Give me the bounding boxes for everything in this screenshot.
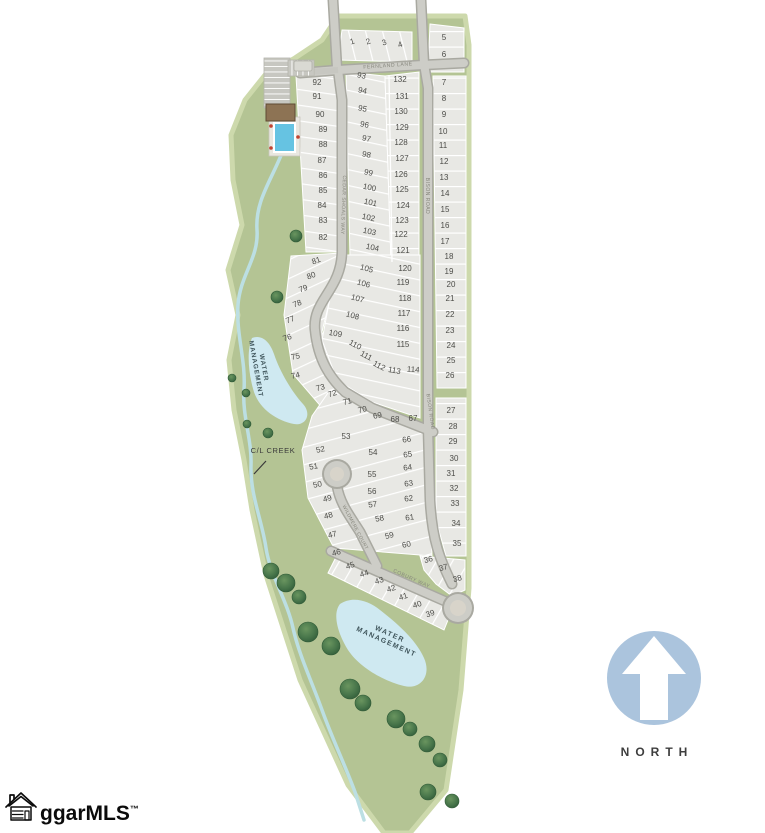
lot-number-23: 23 [446, 326, 455, 335]
lot-number-86: 86 [319, 171, 328, 180]
pool-umbrella-icon [269, 146, 273, 150]
lot-number-68: 68 [391, 415, 400, 424]
lot-number-33: 33 [451, 499, 460, 508]
north-indicator: NORTH [596, 626, 712, 759]
mls-logo: ggarMLS™ [4, 790, 139, 824]
lot-number-126: 126 [394, 170, 408, 179]
pool-umbrella-icon [269, 124, 273, 128]
lot-number-9: 9 [442, 110, 447, 119]
lot-number-20: 20 [447, 280, 456, 289]
plat-map-page: FERNLAND LANECEDAR SHOALS WAYBISON ROADB… [0, 0, 765, 833]
lot-number-129: 129 [395, 123, 409, 132]
lot-number-67: 67 [409, 414, 418, 423]
lot-number-82: 82 [319, 233, 328, 242]
tree-icon [242, 389, 250, 397]
lot-number-91: 91 [313, 92, 322, 101]
lot-number-57: 57 [368, 499, 379, 509]
lot-number-121: 121 [396, 246, 410, 255]
lot-number-115: 115 [397, 340, 410, 349]
lot-number-62: 62 [404, 493, 415, 503]
lot-number-92: 92 [313, 78, 322, 87]
lot-number-18: 18 [445, 252, 454, 261]
lot-number-21: 21 [446, 294, 455, 303]
tree-icon [271, 291, 283, 303]
lot-number-90: 90 [316, 110, 325, 119]
lot-number-27: 27 [447, 406, 456, 415]
tree-icon [298, 622, 318, 642]
cul-de-sac-wildmere [322, 459, 352, 489]
lot-number-116: 116 [397, 324, 410, 333]
lot-number-55: 55 [368, 470, 377, 479]
lot-number-63: 63 [404, 478, 415, 488]
lot-number-84: 84 [318, 201, 327, 210]
lot-number-124: 124 [396, 201, 410, 210]
lot-number-61: 61 [405, 512, 416, 522]
lot-number-32: 32 [450, 484, 459, 493]
lot-number-24: 24 [447, 341, 456, 350]
tree-icon [292, 590, 306, 604]
lot-number-64: 64 [403, 462, 414, 472]
lot-number-11: 11 [439, 141, 448, 150]
lot-number-125: 125 [395, 185, 409, 194]
lot-number-7: 7 [442, 78, 447, 87]
tree-icon [290, 230, 302, 242]
tree-icon [387, 710, 405, 728]
street-label-bison-road: BISON ROAD [424, 178, 430, 214]
tree-icon [322, 637, 340, 655]
lot-number-15: 15 [441, 205, 450, 214]
lot-number-56: 56 [368, 487, 377, 496]
lot-number-128: 128 [394, 138, 408, 147]
lot-number-25: 25 [447, 356, 456, 365]
lot-number-14: 14 [441, 189, 450, 198]
lot-number-130: 130 [394, 107, 408, 116]
lot-number-8: 8 [442, 94, 447, 103]
lot-number-16: 16 [441, 221, 450, 230]
lot-number-131: 131 [395, 92, 409, 101]
north-label: NORTH [596, 745, 712, 759]
lot-number-122: 122 [394, 230, 408, 239]
pool-sign-box [294, 61, 312, 71]
tree-icon [403, 722, 417, 736]
lot-number-19: 19 [445, 267, 454, 276]
tree-icon [355, 695, 371, 711]
lot-number-29: 29 [449, 437, 458, 446]
tree-icon [340, 679, 360, 699]
lot-number-120: 120 [398, 264, 412, 273]
lot-number-17: 17 [441, 237, 450, 246]
tree-icon [433, 753, 447, 767]
tree-icon [277, 574, 295, 592]
lot-number-88: 88 [319, 140, 328, 149]
lot-number-87: 87 [318, 156, 327, 165]
house-icon [4, 790, 38, 824]
cul-de-sac-cobury [442, 592, 474, 624]
lot-number-53: 53 [342, 432, 351, 441]
lot-number-12: 12 [440, 157, 449, 166]
tree-icon [420, 784, 436, 800]
north-arrow-icon [598, 626, 710, 734]
lot-number-127: 127 [395, 154, 409, 163]
tree-icon [263, 563, 279, 579]
lot-number-22: 22 [446, 310, 455, 319]
mls-logo-text: ggarMLS™ [40, 803, 139, 824]
lot-number-65: 65 [403, 449, 414, 459]
area-label-c-l-creek: C/L CREEK [251, 446, 296, 455]
lot-number-54: 54 [369, 448, 378, 457]
parking-lot-vertical [264, 58, 290, 108]
lot-number-30: 30 [450, 454, 459, 463]
lot-number-132: 132 [393, 75, 407, 84]
clubhouse-building [266, 104, 295, 121]
lot-number-89: 89 [319, 125, 328, 134]
tree-icon [228, 374, 236, 382]
tree-icon [263, 428, 273, 438]
pool-umbrella-icon [296, 135, 300, 139]
tree-icon [243, 420, 251, 428]
lot-number-31: 31 [447, 469, 456, 478]
tree-icon [445, 794, 459, 808]
lot-number-123: 123 [395, 216, 409, 225]
lot-number-35: 35 [453, 539, 462, 548]
lot-number-34: 34 [452, 519, 461, 528]
lot-number-83: 83 [319, 216, 328, 225]
lot-number-85: 85 [319, 186, 328, 195]
lot-number-26: 26 [446, 371, 455, 380]
lot-number-66: 66 [402, 434, 413, 444]
swimming-pool [274, 123, 295, 152]
lot-number-28: 28 [449, 422, 458, 431]
lot-number-6: 6 [442, 50, 447, 59]
lot-number-10: 10 [439, 127, 448, 136]
trademark-symbol: ™ [130, 804, 139, 814]
lot-number-118: 118 [399, 294, 412, 303]
tree-icon [419, 736, 435, 752]
lot-number-114: 114 [406, 364, 420, 374]
lot-number-13: 13 [440, 173, 449, 182]
lot-number-119: 119 [397, 278, 410, 287]
lot-number-117: 117 [398, 309, 411, 318]
lot-number-5: 5 [442, 33, 447, 42]
